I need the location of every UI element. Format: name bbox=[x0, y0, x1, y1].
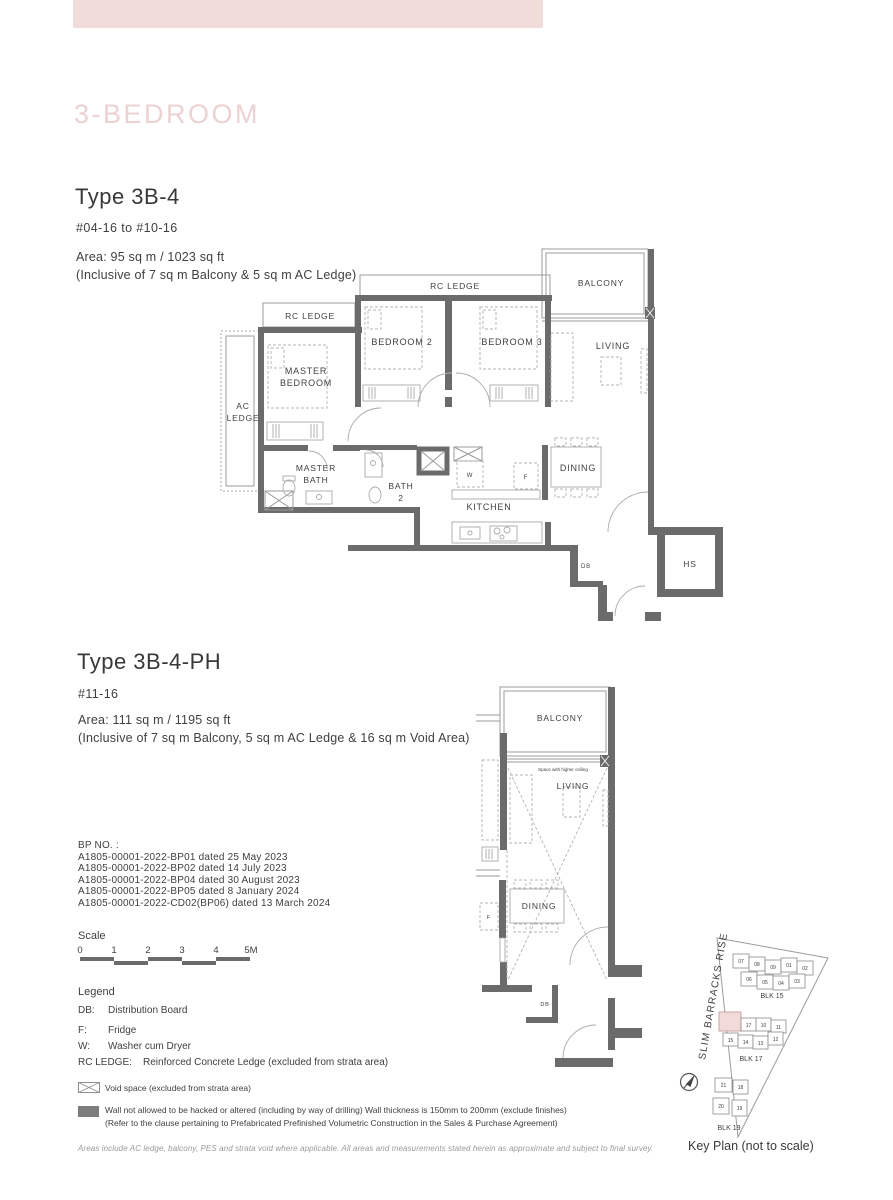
svg-text:10: 10 bbox=[761, 1023, 767, 1029]
keyplan-highlighted-unit bbox=[719, 1012, 741, 1031]
room-label-balcony: BALCONY bbox=[578, 278, 624, 288]
svg-text:15: 15 bbox=[728, 1038, 734, 1044]
svg-text:05: 05 bbox=[762, 980, 768, 986]
scale-bar: 0 1 2 3 4 5M bbox=[73, 944, 263, 970]
room-label-hs: HS bbox=[683, 559, 696, 569]
bed-icon bbox=[268, 307, 537, 408]
unit2-area-line1: Area: 111 sq m / 1195 sq ft bbox=[78, 712, 470, 730]
vent-x-icon bbox=[645, 307, 655, 319]
svg-text:14: 14 bbox=[743, 1040, 749, 1046]
svg-text:3: 3 bbox=[179, 945, 184, 956]
svg-text:LEDGE: LEDGE bbox=[227, 413, 260, 423]
balcony-outline bbox=[500, 687, 610, 762]
wall-swatch-icon bbox=[78, 1106, 99, 1117]
bp-line: A1805-00001-2022-BP05 dated 8 January 20… bbox=[78, 886, 330, 898]
svg-text:09: 09 bbox=[770, 965, 776, 971]
room-label-kitchen: KITCHEN bbox=[466, 502, 511, 512]
wall-note: Wall not allowed to be hacked or altered… bbox=[105, 1104, 625, 1129]
svg-text:18: 18 bbox=[738, 1085, 744, 1091]
door-arc bbox=[309, 373, 648, 616]
room-label-master-bath: MASTER bbox=[296, 463, 336, 473]
svg-text:13: 13 bbox=[758, 1041, 764, 1047]
legend-heading: Legend bbox=[78, 986, 115, 998]
bp-heading: BP NO. : bbox=[78, 840, 330, 852]
shaft-x-icon bbox=[265, 447, 482, 510]
room-label-living: LIVING bbox=[557, 781, 590, 791]
svg-text:2: 2 bbox=[398, 493, 404, 503]
svg-text:02: 02 bbox=[802, 966, 808, 972]
walls bbox=[258, 249, 662, 621]
void-space-swatch-icon bbox=[78, 1082, 100, 1093]
floorplan-3b4-ph: BALCONY Space with higher ceiling LIVING… bbox=[460, 675, 680, 1075]
svg-text:1: 1 bbox=[111, 945, 116, 956]
key-plan: SLIM BARRACKS RISE 07 08 09 01 02 06 05 … bbox=[675, 930, 893, 1170]
room-label-balcony: BALCONY bbox=[537, 713, 583, 723]
label-higher-ceiling: Space with higher ceiling bbox=[538, 767, 588, 772]
kitchen-counter-icon bbox=[452, 522, 542, 543]
unit2-area-line2: (Inclusive of 7 sq m Balcony, 5 sq m AC … bbox=[78, 730, 470, 748]
svg-text:BATH: BATH bbox=[303, 475, 328, 485]
void-cross-icon bbox=[507, 768, 607, 980]
brochure-page: 3-BEDROOM Type 3B-4 #04-16 to #10-16 Are… bbox=[0, 0, 893, 1200]
bp-line: A1805-00001-2022-BP04 dated 30 August 20… bbox=[78, 875, 330, 887]
door-arc bbox=[563, 927, 608, 1058]
room-label-rc-ledge-left: RC LEDGE bbox=[285, 311, 335, 321]
bp-number-block: BP NO. : A1805-00001-2022-BP01 dated 25 … bbox=[78, 840, 330, 910]
north-arrow-icon bbox=[681, 1074, 698, 1091]
svg-text:BEDROOM: BEDROOM bbox=[280, 378, 332, 388]
vent-x-icon bbox=[600, 755, 610, 767]
svg-text:06: 06 bbox=[746, 977, 752, 983]
room-label-rc-ledge-top: RC LEDGE bbox=[430, 281, 480, 291]
keyplan-blk15-label: BLK 15 bbox=[761, 993, 784, 1000]
svg-text:17: 17 bbox=[746, 1023, 752, 1029]
bp-line: A1805-00001-2022-BP02 dated 14 July 2023 bbox=[78, 863, 330, 875]
bp-line: A1805-00001-2022-BP01 dated 25 May 2023 bbox=[78, 852, 330, 864]
header-accent-band bbox=[73, 0, 543, 28]
ac-ledge-outline bbox=[221, 331, 259, 491]
scale-ticks: 0 1 2 3 4 5M bbox=[77, 945, 257, 956]
walls bbox=[482, 687, 642, 1067]
scale-heading: Scale bbox=[78, 930, 106, 942]
svg-text:4: 4 bbox=[213, 945, 218, 956]
room-label-master-bedroom: MASTER bbox=[285, 366, 327, 376]
floorplan-3b4: RC LEDGE RC LEDGE BALCONY AC LEDGE MASTE… bbox=[205, 245, 735, 645]
svg-text:5M: 5M bbox=[244, 945, 257, 956]
bp-line: A1805-00001-2022-CD02(BP06) dated 13 Mar… bbox=[78, 898, 330, 910]
wardrobe-icon bbox=[267, 385, 538, 440]
scale-segments bbox=[80, 957, 250, 965]
unit2-title: Type 3B-4-PH bbox=[77, 649, 221, 675]
room-label-dining: DINING bbox=[522, 901, 557, 911]
unit2-area: Area: 111 sq m / 1195 sq ft (Inclusive o… bbox=[78, 712, 470, 747]
keyplan-blk19 bbox=[713, 1078, 748, 1116]
keyplan-blk17-label: BLK 17 bbox=[740, 1056, 763, 1063]
room-label-dining: DINING bbox=[560, 463, 596, 473]
svg-text:11: 11 bbox=[776, 1025, 781, 1031]
svg-text:12: 12 bbox=[773, 1037, 779, 1043]
label-fridge: F bbox=[524, 475, 528, 481]
svg-text:21: 21 bbox=[721, 1083, 727, 1089]
void-space-note: Void space (excluded from strata area) bbox=[105, 1082, 251, 1095]
unit1-title: Type 3B-4 bbox=[75, 184, 180, 210]
svg-text:01: 01 bbox=[786, 963, 792, 969]
bathroom-fixtures bbox=[283, 453, 382, 504]
footer-disclaimer: Areas include AC ledge, balcony, PES and… bbox=[78, 1144, 653, 1153]
unit1-levels: #04-16 to #10-16 bbox=[76, 221, 178, 235]
label-washer: W bbox=[467, 473, 473, 479]
svg-text:0: 0 bbox=[77, 945, 82, 956]
room-label-bath2: BATH bbox=[388, 481, 413, 491]
room-label-bedroom3: BEDROOM 3 bbox=[481, 337, 542, 347]
svg-text:20: 20 bbox=[718, 1104, 724, 1110]
label-fridge: F bbox=[487, 915, 491, 921]
svg-text:04: 04 bbox=[778, 981, 784, 987]
unit2-levels: #11-16 bbox=[78, 687, 118, 701]
plan1-labels: RC LEDGE RC LEDGE BALCONY AC LEDGE MASTE… bbox=[227, 278, 697, 570]
page-title: 3-BEDROOM bbox=[74, 99, 260, 130]
room-label-bedroom2: BEDROOM 2 bbox=[371, 337, 432, 347]
keyplan-blk19-label: BLK 19 bbox=[718, 1125, 741, 1132]
keyplan-caption: Key Plan (not to scale) bbox=[688, 1139, 814, 1153]
room-label-ac-ledge: AC bbox=[236, 401, 249, 411]
label-db: DB bbox=[581, 564, 591, 570]
svg-text:2: 2 bbox=[145, 945, 150, 956]
keyplan-blk15 bbox=[733, 954, 813, 990]
svg-text:03: 03 bbox=[794, 979, 800, 985]
svg-text:08: 08 bbox=[754, 962, 760, 968]
svg-text:07: 07 bbox=[738, 959, 744, 965]
svg-text:19: 19 bbox=[737, 1106, 743, 1112]
room-label-living: LIVING bbox=[596, 341, 630, 351]
label-db: DB bbox=[540, 1002, 549, 1008]
